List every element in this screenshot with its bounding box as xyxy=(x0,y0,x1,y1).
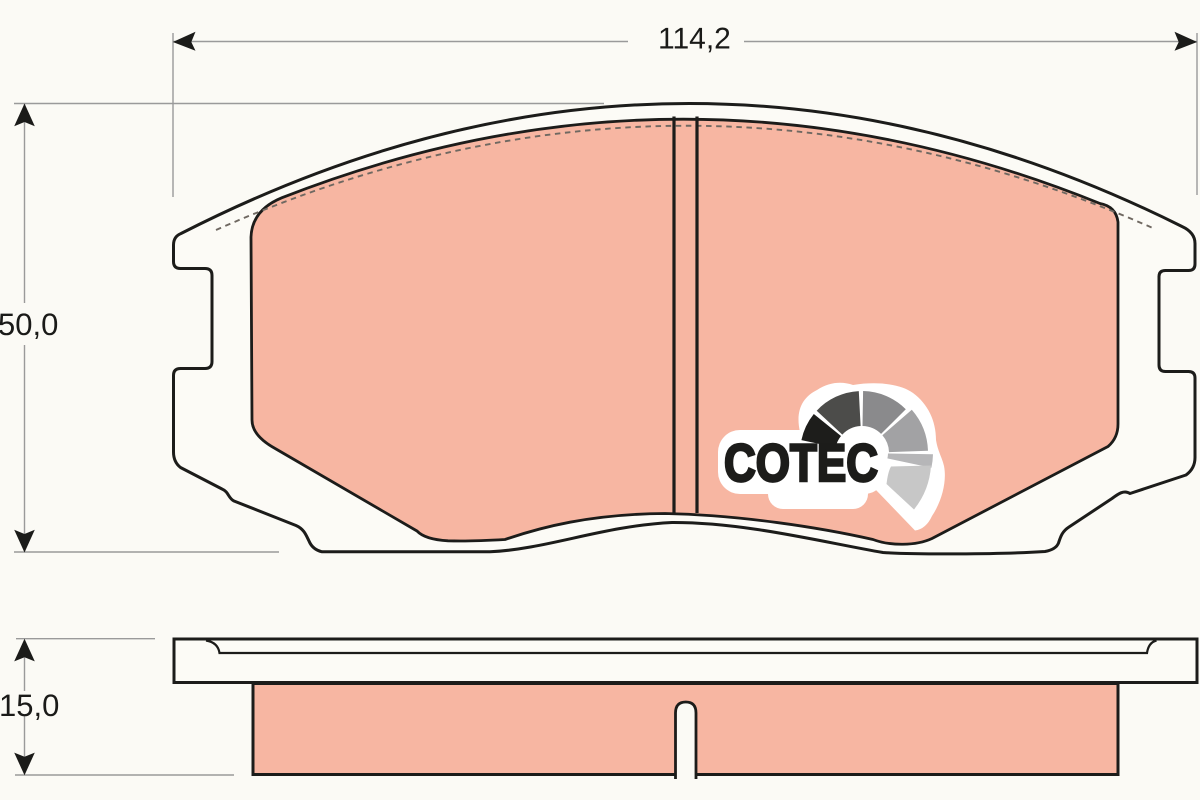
svg-text:50,0: 50,0 xyxy=(0,307,58,342)
svg-text:114,2: 114,2 xyxy=(658,23,731,56)
svg-text:COTEC: COTEC xyxy=(724,434,878,493)
svg-text:15,0: 15,0 xyxy=(0,688,59,723)
